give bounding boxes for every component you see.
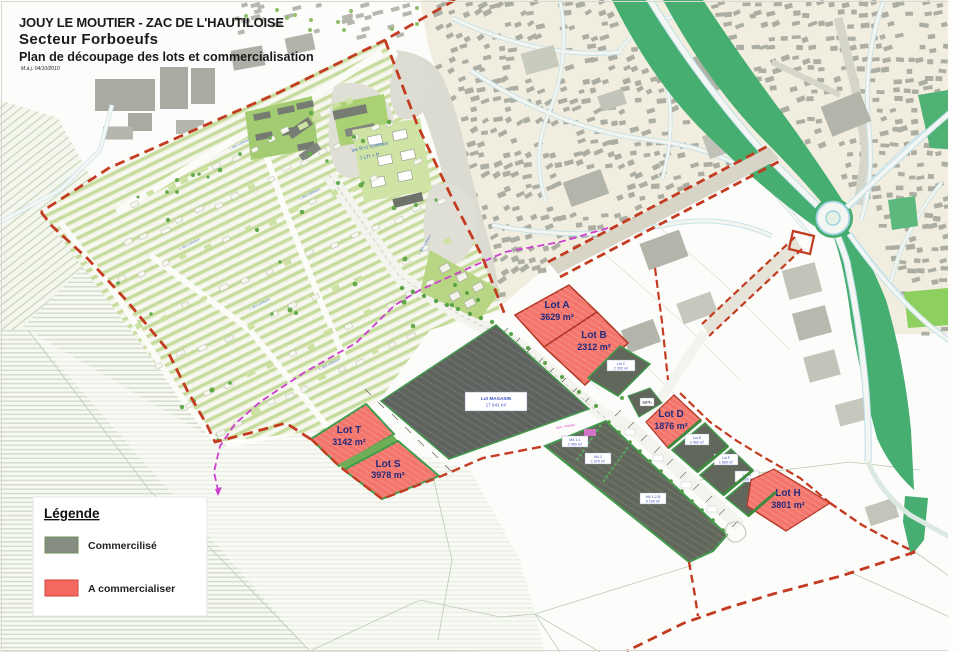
svg-text:M.à.j. 04/10/2010: M.à.j. 04/10/2010 xyxy=(21,66,60,72)
svg-text:1876 m²: 1876 m² xyxy=(654,421,688,431)
svg-text:2 200 m²: 2 200 m² xyxy=(614,367,629,371)
svg-text:2 450 m²: 2 450 m² xyxy=(568,443,583,447)
svg-text:M4 1-2-B: M4 1-2-B xyxy=(646,495,661,499)
svg-text:Lot F: Lot F xyxy=(722,456,731,460)
svg-text:1 970 m²: 1 970 m² xyxy=(591,460,606,464)
svg-text:9 100 m²: 9 100 m² xyxy=(646,500,661,504)
svg-text:Lot S: Lot S xyxy=(376,459,401,470)
svg-text:Commercilisé: Commercilisé xyxy=(88,540,157,552)
svg-text:3978 m²: 3978 m² xyxy=(371,470,405,480)
svg-text:Lot T: Lot T xyxy=(337,425,361,436)
svg-text:Lot MAGASIN: Lot MAGASIN xyxy=(481,396,512,401)
svg-text:3629 m²: 3629 m² xyxy=(540,312,574,322)
svg-text:MPh: MPh xyxy=(642,400,652,405)
svg-text:Secteur Forboeufs: Secteur Forboeufs xyxy=(19,31,158,48)
svg-text:Plan de découpage des lots et: Plan de découpage des lots et commercial… xyxy=(19,50,314,64)
svg-text:Lot D: Lot D xyxy=(658,409,684,420)
svg-text:Lot H: Lot H xyxy=(775,488,801,499)
svg-text:Lot E: Lot E xyxy=(693,436,702,440)
svg-text:JOUY LE MOUTIER - ZAC DE L'HAU: JOUY LE MOUTIER - ZAC DE L'HAUTILOISE xyxy=(19,15,284,30)
svg-text:3142 m²: 3142 m² xyxy=(332,437,366,447)
svg-text:1 800 m²: 1 800 m² xyxy=(719,461,734,465)
svg-text:Lot C: Lot C xyxy=(617,362,626,366)
svg-text:Lot A: Lot A xyxy=(544,300,569,311)
svg-text:M4 2: M4 2 xyxy=(594,455,602,459)
svg-text:17 641 m²: 17 641 m² xyxy=(486,403,507,408)
svg-text:Lot B: Lot B xyxy=(581,330,607,341)
svg-text:3801 m²: 3801 m² xyxy=(771,500,805,510)
svg-text:Légende: Légende xyxy=(44,506,100,521)
svg-text:A commercialiser: A commercialiser xyxy=(88,583,175,595)
svg-text:M4 1-1: M4 1-1 xyxy=(569,438,580,442)
svg-text:2312 m²: 2312 m² xyxy=(577,342,611,352)
svg-text:2 400 m²: 2 400 m² xyxy=(690,441,705,445)
